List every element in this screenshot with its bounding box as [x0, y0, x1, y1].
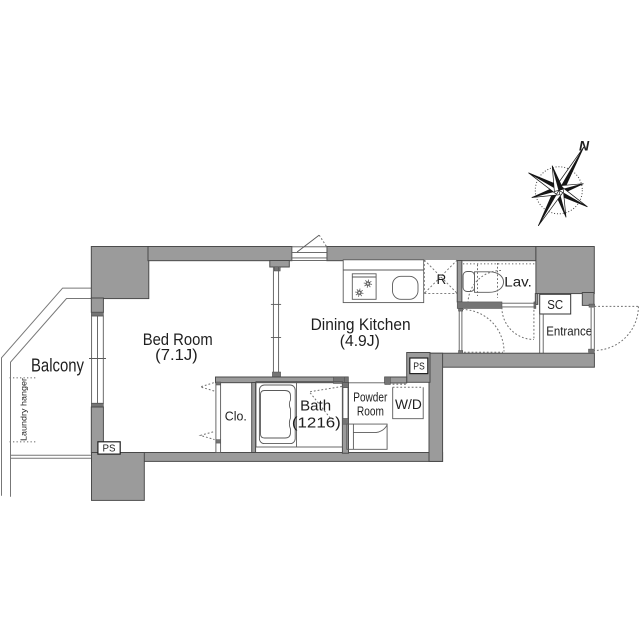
svg-text:Entrance: Entrance: [546, 324, 592, 338]
svg-text:PS: PS: [103, 444, 116, 455]
svg-text:W/D: W/D: [395, 397, 422, 412]
svg-text:N: N: [579, 138, 590, 154]
svg-text:Powder: Powder: [353, 391, 387, 405]
svg-text:Lav.: Lav.: [504, 275, 532, 290]
svg-text:R: R: [437, 272, 447, 287]
svg-text:Balcony: Balcony: [31, 356, 84, 376]
svg-text:(7.1J): (7.1J): [155, 347, 198, 364]
svg-text:(1216): (1216): [292, 415, 341, 432]
svg-text:(4.9J): (4.9J): [340, 333, 380, 350]
svg-text:Clo.: Clo.: [225, 410, 247, 424]
svg-text:Room: Room: [357, 405, 384, 419]
svg-text:Dining Kitchen: Dining Kitchen: [311, 315, 411, 334]
svg-text:Laundry hanger: Laundry hanger: [19, 378, 29, 441]
svg-text:Bath: Bath: [300, 399, 331, 415]
svg-text:SC: SC: [547, 298, 563, 312]
svg-text:PS: PS: [413, 362, 425, 373]
